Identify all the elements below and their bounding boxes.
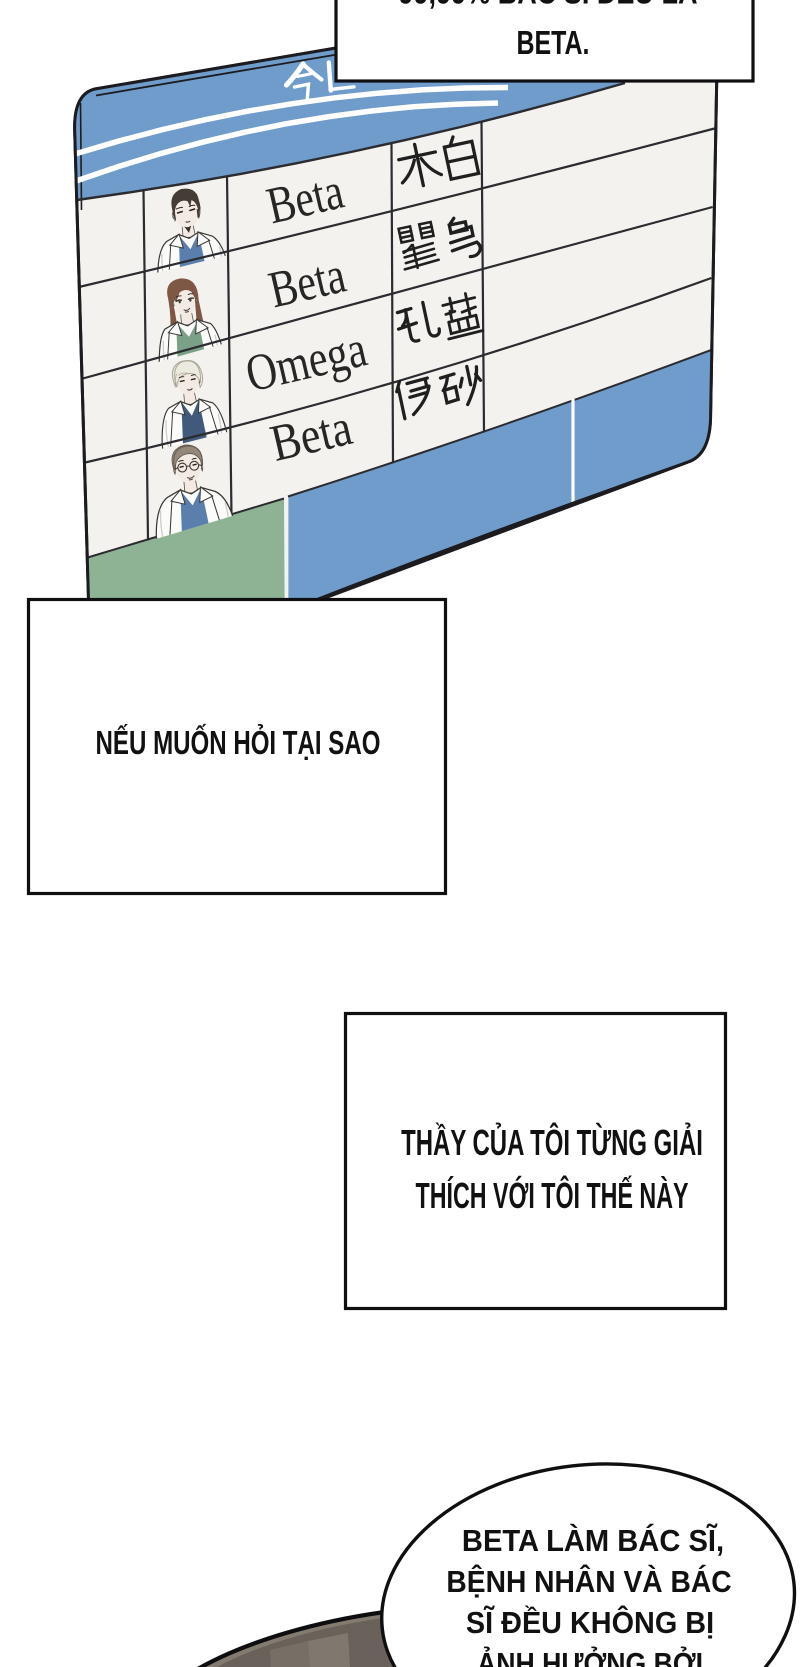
svg-text:THẦY CỦA TÔI TỪNG GIẢI: THẦY CỦA TÔI TỪNG GIẢI <box>401 1121 703 1163</box>
svg-text:BỆNH NHÂN VÀ BÁC: BỆNH NHÂN VÀ BÁC <box>446 1564 731 1600</box>
svg-text:THÍCH VỚI TÔI THẾ NÀY: THÍCH VỚI TÔI THẾ NÀY <box>415 1176 688 1216</box>
svg-text:99,99% BÁC SĨ ĐỀU LÀ: 99,99% BÁC SĨ ĐỀU LÀ <box>398 0 697 11</box>
svg-text:BETA.: BETA. <box>517 26 590 62</box>
svg-text:BETA LÀM BÁC SĨ,: BETA LÀM BÁC SĨ, <box>462 1523 724 1558</box>
svg-text:ẢNH HƯỞNG BỞI: ẢNH HƯỞNG BỞI <box>477 1645 703 1667</box>
svg-text:NẾU MUỐN HỎI TẠI SAO: NẾU MUỐN HỎI TẠI SAO <box>96 723 381 762</box>
svg-text:SĨ ĐỀU KHÔNG BỊ: SĨ ĐỀU KHÔNG BỊ <box>466 1605 714 1640</box>
